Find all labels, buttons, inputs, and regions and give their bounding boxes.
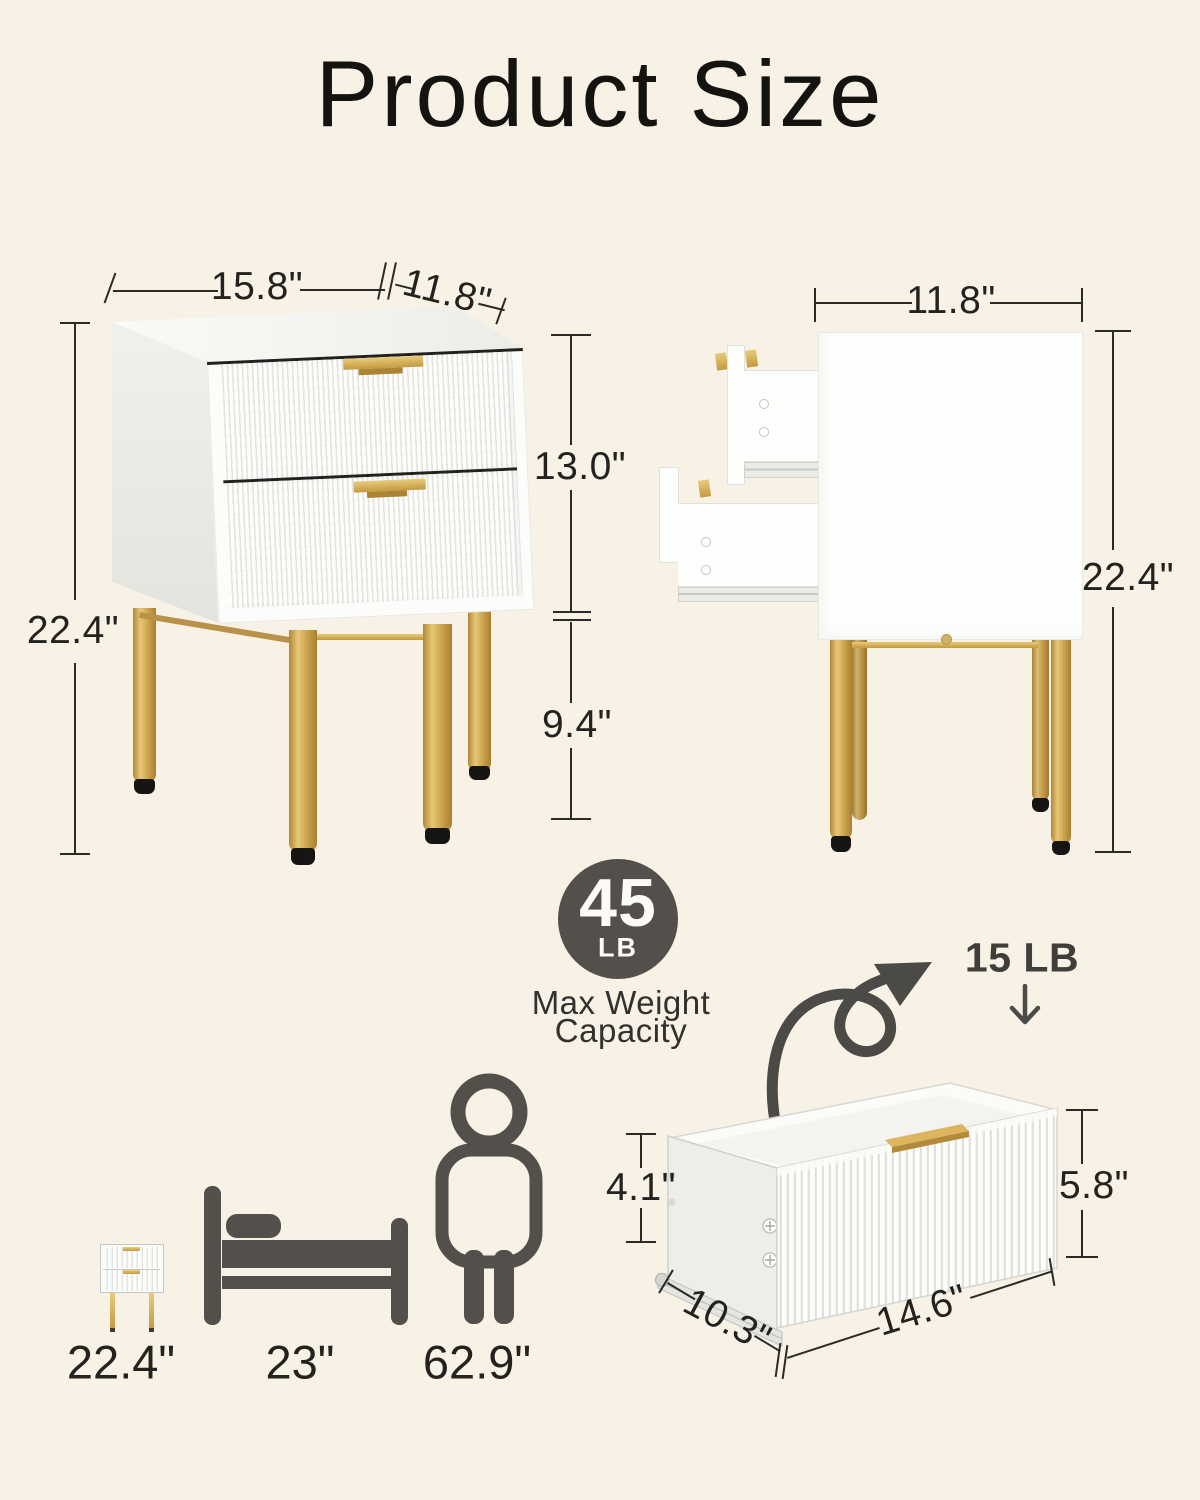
drawer-side-height-line: [640, 1134, 642, 1168]
drawer-front-height-line: [1081, 1210, 1083, 1257]
drawer-diagram: [600, 1080, 1200, 1410]
cabinet-height-dim-tick: [553, 611, 591, 613]
screw: [759, 427, 769, 437]
nightstand-front-face: [207, 348, 534, 624]
nightstand-icon-drawer: [103, 1270, 160, 1291]
front-height-dim-line: [74, 323, 76, 600]
side-height-label: 22.4": [1082, 556, 1174, 600]
leg-height-dim-line: [570, 748, 572, 818]
nightstand-icon-drawer: [103, 1247, 160, 1268]
nightstand-icon-handle: [123, 1270, 140, 1274]
side-depth-dim-tick: [814, 288, 816, 322]
nightstand-leg: [1051, 640, 1071, 845]
nightstand-icon-body: [100, 1244, 164, 1293]
front-width-dim-tick: [377, 262, 387, 300]
front-height-dim-tick: [60, 853, 90, 855]
weight-badge: 45 LB: [558, 859, 678, 979]
drawer-back-panel: [659, 467, 679, 563]
drawer-load-label: 15 LB: [965, 935, 1079, 982]
nightstand-leg-foot: [469, 766, 490, 780]
nightstand-leg-foot: [1032, 798, 1049, 812]
cabinet-height-dim-tick: [553, 619, 591, 621]
product-size-infographic: Product Size 15.8" 11.8" 22.4" 13.0" 9.4…: [0, 0, 1200, 1500]
side-depth-dim-line: [816, 302, 912, 304]
down-arrow-icon: [1006, 984, 1044, 1030]
front-height-dim-line: [74, 663, 76, 854]
nightstand-icon: [100, 1244, 166, 1334]
drawer-side: [678, 503, 820, 587]
screw: [701, 565, 711, 575]
leg-crossbar: [306, 634, 430, 640]
side-depth-dim-line: [990, 302, 1082, 304]
side-height-dim-line: [1112, 607, 1114, 852]
nightstand-icon-foot: [149, 1328, 154, 1332]
weight-caption-line2: Capacity: [555, 1012, 687, 1050]
comparison-person-label: 62.9": [423, 1335, 531, 1390]
drawer-clip: [745, 349, 758, 367]
front-width-label: 15.8": [211, 265, 303, 309]
nightstand-icon-handle: [123, 1247, 140, 1251]
drawer-slide-rail: [744, 462, 820, 478]
nightstand-side-panel: [818, 332, 1083, 640]
nightstand-leg: [133, 608, 156, 783]
side-height-dim-line: [1112, 332, 1114, 550]
leg-height-dim-tick: [551, 818, 591, 820]
nightstand-leg: [1032, 640, 1049, 802]
nightstand-side-face: [112, 322, 218, 625]
comparison-nightstand-label: 22.4": [67, 1335, 175, 1390]
nightstand-leg-foot: [134, 779, 155, 794]
nightstand-leg: [289, 630, 317, 852]
bed-icon: [200, 1184, 412, 1328]
drawer-back-panel: [727, 345, 745, 485]
drawer-front-height-label: 5.8": [1059, 1164, 1129, 1208]
cabinet-height-label: 13.0": [534, 445, 626, 489]
drawer-side-height-line: [640, 1208, 642, 1242]
nightstand-leg-foot: [291, 848, 315, 865]
nightstand-leg-foot: [425, 828, 450, 844]
front-width-dim-line: [113, 290, 218, 292]
nightstand-icon-foot: [110, 1328, 115, 1332]
leg-height-dim-line: [570, 622, 572, 703]
nightstand-leg-foot: [1052, 841, 1070, 855]
weight-badge-unit: LB: [598, 933, 638, 964]
leg-height-label: 9.4": [542, 703, 612, 747]
weight-badge-value: 45: [579, 864, 657, 942]
screw: [759, 399, 769, 409]
nightstand-icon-leg: [110, 1293, 115, 1330]
front-width-dim-line: [300, 289, 385, 291]
drawer-clip: [698, 479, 711, 497]
nightstand-leg-foot: [831, 836, 851, 852]
drawer-side-height-label: 4.1": [606, 1166, 676, 1210]
nightstand-icon-leg: [149, 1293, 154, 1330]
nightstand-leg: [830, 640, 852, 840]
front-width-dim-tick: [387, 262, 397, 300]
nightstand-leg: [468, 602, 491, 772]
drawer-side: [744, 370, 820, 462]
page-title: Product Size: [0, 40, 1200, 148]
side-height-dim-tick: [1095, 851, 1131, 853]
person-icon: [428, 1066, 550, 1328]
front-width-dim-tick: [104, 273, 117, 304]
screw: [941, 634, 952, 645]
front-height-label: 22.4": [27, 609, 119, 653]
comparison-bed-label: 23": [266, 1335, 335, 1390]
drawer-front-height-line: [1081, 1111, 1083, 1164]
drawer-front-height-tick: [1066, 1256, 1098, 1258]
drawer-slide-rail: [678, 587, 820, 602]
front-depth-dim-tick: [495, 298, 506, 325]
side-depth-dim-tick: [1081, 288, 1083, 322]
side-depth-label: 11.8": [906, 279, 995, 323]
screw: [701, 537, 711, 547]
nightstand-leg: [852, 640, 867, 820]
drawer-side-height-tick: [626, 1241, 656, 1243]
nightstand-leg: [423, 624, 452, 832]
cabinet-height-dim-line: [570, 335, 572, 445]
cabinet-height-dim-line: [570, 490, 572, 611]
